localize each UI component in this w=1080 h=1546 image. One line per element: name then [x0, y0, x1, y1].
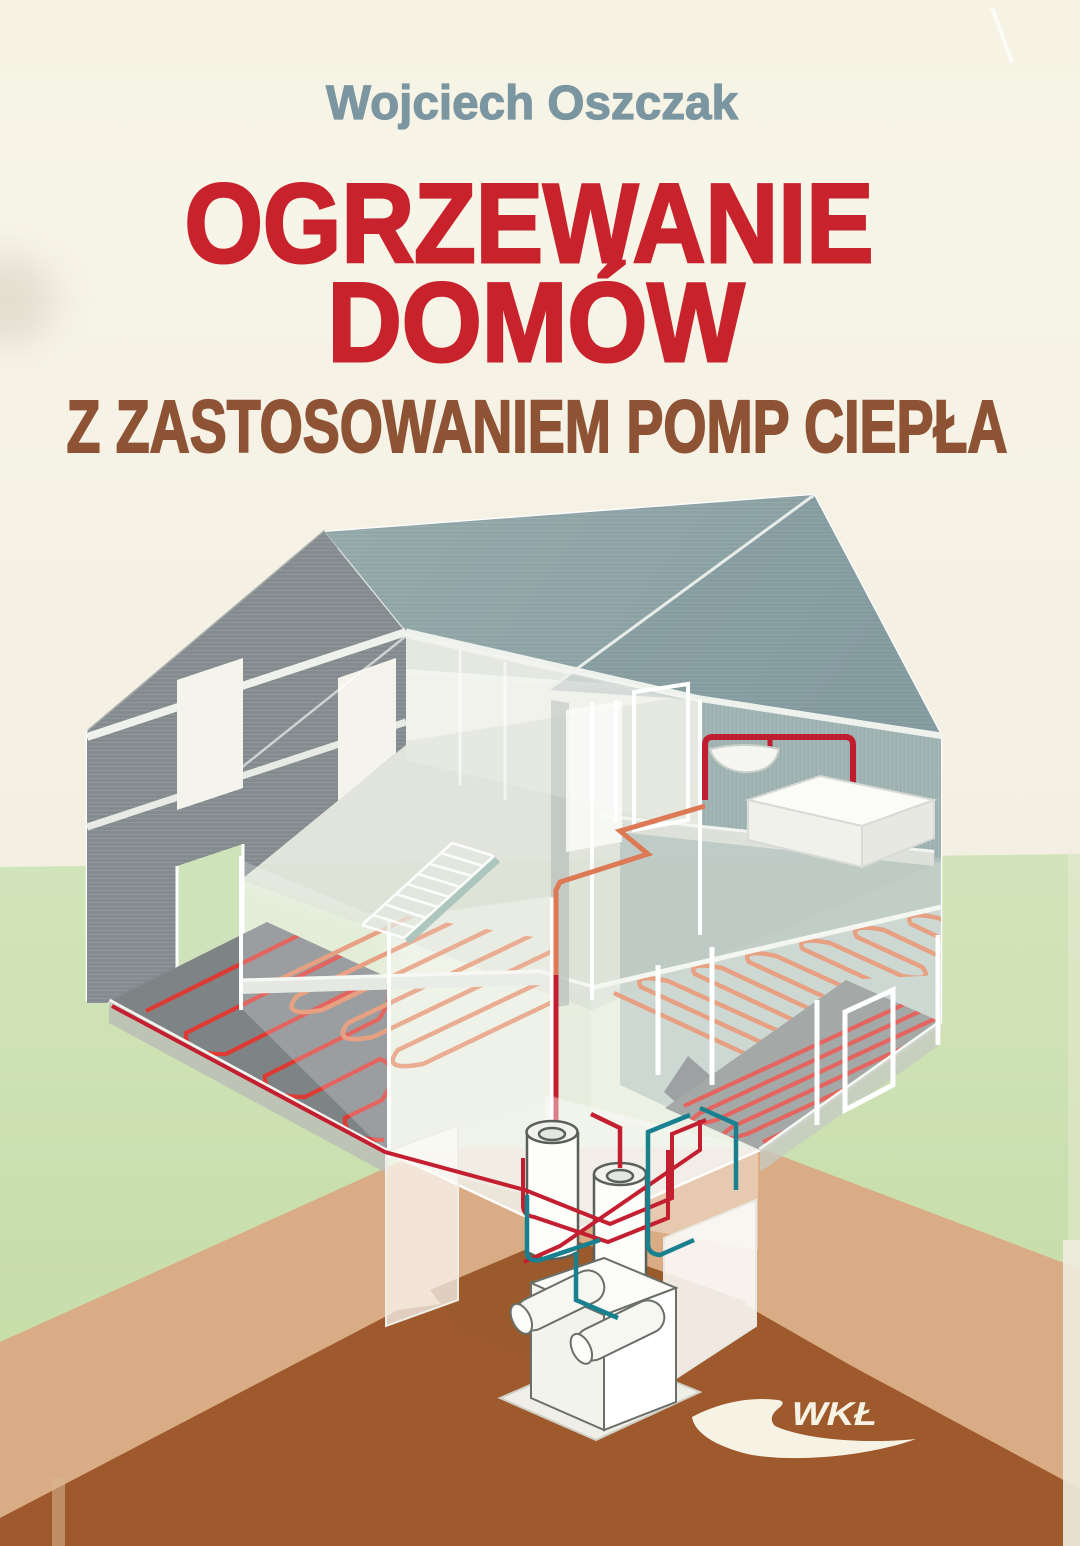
svg-text:WKŁ: WKŁ — [787, 1396, 882, 1432]
svg-text:Wojciech Oszczak: Wojciech Oszczak — [326, 77, 738, 130]
svg-text:Z ZASTOSOWANIEM POMP CIEPŁA: Z ZASTOSOWANIEM POMP CIEPŁA — [67, 385, 1008, 468]
svg-text:DOMÓW: DOMÓW — [328, 260, 745, 385]
